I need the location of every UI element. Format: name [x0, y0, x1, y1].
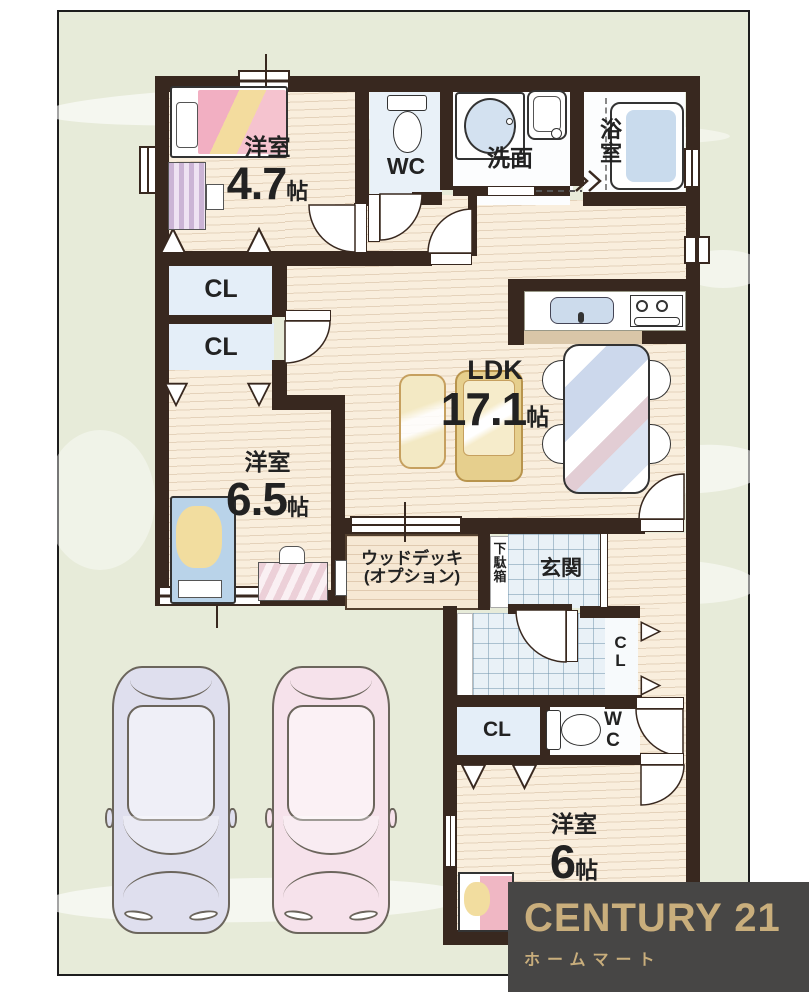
hanger-triangle-icon: [510, 762, 539, 791]
deck-note: (オプション): [336, 568, 488, 586]
toilet-bowl: [393, 111, 422, 153]
label-wood-deck: ウッドデッキ (オプション): [336, 550, 488, 587]
car-roof: [127, 705, 216, 821]
label-shoe-cabinet: 下駄箱: [492, 542, 508, 584]
car-headlight: [284, 909, 314, 922]
room-label-wc-lower: WC: [603, 710, 623, 751]
dining-table-icon: [563, 344, 650, 494]
room-label-closet1: CL: [195, 276, 247, 303]
room-size: 6: [550, 835, 575, 888]
toilet-icon: [546, 710, 561, 750]
door-leaf-wc-upper: [368, 194, 380, 242]
door-arc-bedroom65: [285, 321, 330, 363]
car-icon: [112, 666, 230, 934]
wall-wc-left: [355, 90, 369, 206]
window-tick: [404, 502, 406, 542]
door-arc-front: [516, 610, 566, 662]
room-size: 17.1: [441, 383, 527, 435]
folding-door-bath-icon: [574, 168, 604, 194]
century21-logo: CENTURY 21 ホームマート: [508, 882, 809, 992]
wall-washroom-bottom-l: [453, 186, 489, 196]
washing-machine-knob: [551, 128, 562, 139]
room-size: 6.5: [226, 473, 287, 525]
door-leaf-bedroom65: [285, 310, 331, 321]
car-windshield: [283, 816, 379, 856]
room-size: 4.7: [227, 158, 287, 209]
room-label-entrance: 玄関: [532, 558, 590, 581]
wall-bath-bottom: [583, 192, 700, 206]
floorplan-page: 洋室 4.7帖 WC 洗面 浴室 CL CL LDK 17.1帖 洋室 6.5帖…: [0, 0, 809, 992]
room-unit: 帖: [286, 179, 308, 204]
hanger-triangle-icon: [638, 674, 663, 697]
vanity-faucet: [506, 118, 513, 125]
car-rear-window: [130, 676, 212, 700]
room-unit: 帖: [526, 404, 549, 430]
wall-entrance-hall-left: [443, 606, 457, 707]
room-label-bedroom6: 洋室 6帖: [518, 812, 630, 888]
room-label-bedroom47: 洋室 4.7帖: [195, 135, 340, 208]
room-name: 洋室: [551, 811, 597, 837]
bed-pillow: [464, 882, 490, 916]
door-arc-bedroom6: [641, 765, 684, 805]
kitchen-corner-block: [640, 329, 686, 344]
room-label-wc-upper: WC: [372, 154, 440, 179]
door-leaf-bedroom6: [640, 753, 684, 765]
corridor-upper-floor: [602, 533, 686, 608]
room-unit: 帖: [575, 857, 598, 883]
sliding-door-washroom: [487, 186, 535, 196]
hanger-triangle-icon: [245, 381, 273, 408]
car-mirror: [265, 808, 274, 828]
kitchen-left-stub: [508, 279, 524, 345]
wall-corridor-divider: [580, 606, 640, 618]
car-mirror: [388, 808, 397, 828]
desk-chair-icon: [279, 546, 305, 564]
hanger-triangle-icon: [459, 762, 488, 791]
room-name: 洋室: [245, 449, 291, 475]
room-label-bathroom: 浴室: [598, 118, 624, 166]
door-arc-hall-ldk: [428, 209, 472, 253]
door-leaf-hall-ldk: [430, 253, 472, 265]
car-hood: [283, 871, 379, 900]
window-bedroom47-left: [139, 146, 157, 194]
car-mirror: [228, 808, 237, 828]
car-icon: [272, 666, 390, 934]
desk-icon: [258, 562, 328, 601]
room-name: 洋室: [245, 134, 291, 160]
counter-edge: [524, 331, 642, 344]
wall-closet-right: [272, 251, 287, 317]
hanger-triangle-icon: [158, 226, 188, 256]
window-hall-right: [684, 236, 710, 264]
car-headlight: [349, 909, 379, 922]
room-name: LDK: [467, 355, 523, 385]
entry-step-strip: [457, 613, 473, 697]
hanger-triangle-icon: [638, 620, 663, 643]
car-mirror: [105, 808, 114, 828]
window-bathroom-right: [684, 148, 700, 188]
logo-company-text: ホームマート: [524, 946, 809, 970]
hanger-triangle-icon: [243, 226, 275, 256]
wall-right: [686, 76, 700, 945]
door-leaf-front: [566, 610, 578, 662]
room-label-closet-hall: CL: [613, 634, 628, 671]
wall-left: [155, 76, 169, 606]
room-label-ldk: LDK 17.1帖: [420, 356, 570, 435]
car-headlight: [124, 909, 154, 922]
room-label-closet3: CL: [473, 719, 521, 742]
stove-grill: [634, 317, 680, 326]
car-rear-window: [290, 676, 372, 700]
wall-hall-bottom: [285, 251, 432, 266]
hanger-triangle-icon: [162, 381, 190, 408]
wall-closet-hall-bottom: [605, 700, 638, 709]
car-windshield: [123, 816, 219, 856]
room-label-bedroom65: 洋室 6.5帖: [195, 450, 340, 525]
door-arc-wc-upper: [380, 194, 422, 240]
door-leaf-bedroom47: [354, 203, 367, 253]
toilet-icon: [387, 95, 427, 111]
room-label-closet2: CL: [195, 334, 247, 361]
stove-burner: [636, 300, 648, 312]
bathtub-water: [626, 110, 676, 182]
room-unit: 帖: [287, 495, 309, 520]
window-ldk-deck-slider: [350, 516, 462, 534]
deck-name: ウッドデッキ: [336, 550, 488, 568]
logo-brand-text: CENTURY 21: [524, 896, 809, 940]
kitchen-faucet: [578, 312, 584, 323]
wall-closet-divider: [168, 315, 272, 324]
door-leaf-ldk-corridor: [640, 519, 684, 532]
front-door-leaf: [600, 533, 608, 608]
toilet-bowl: [561, 714, 601, 746]
bed-pillow: [178, 580, 222, 598]
door-leaf-wc-lower: [636, 697, 684, 709]
car-roof: [287, 705, 376, 821]
car-headlight: [189, 909, 219, 922]
car-hood: [123, 871, 219, 900]
stove-burner: [656, 300, 668, 312]
washing-machine-drum: [533, 96, 561, 132]
window-bedroom6-left: [444, 814, 457, 868]
door-arc-bedroom47: [309, 205, 355, 252]
wall-wc-washroom: [440, 90, 453, 190]
room-label-washroom: 洗面: [484, 146, 536, 171]
door-arc-wc-lower: [636, 709, 683, 756]
